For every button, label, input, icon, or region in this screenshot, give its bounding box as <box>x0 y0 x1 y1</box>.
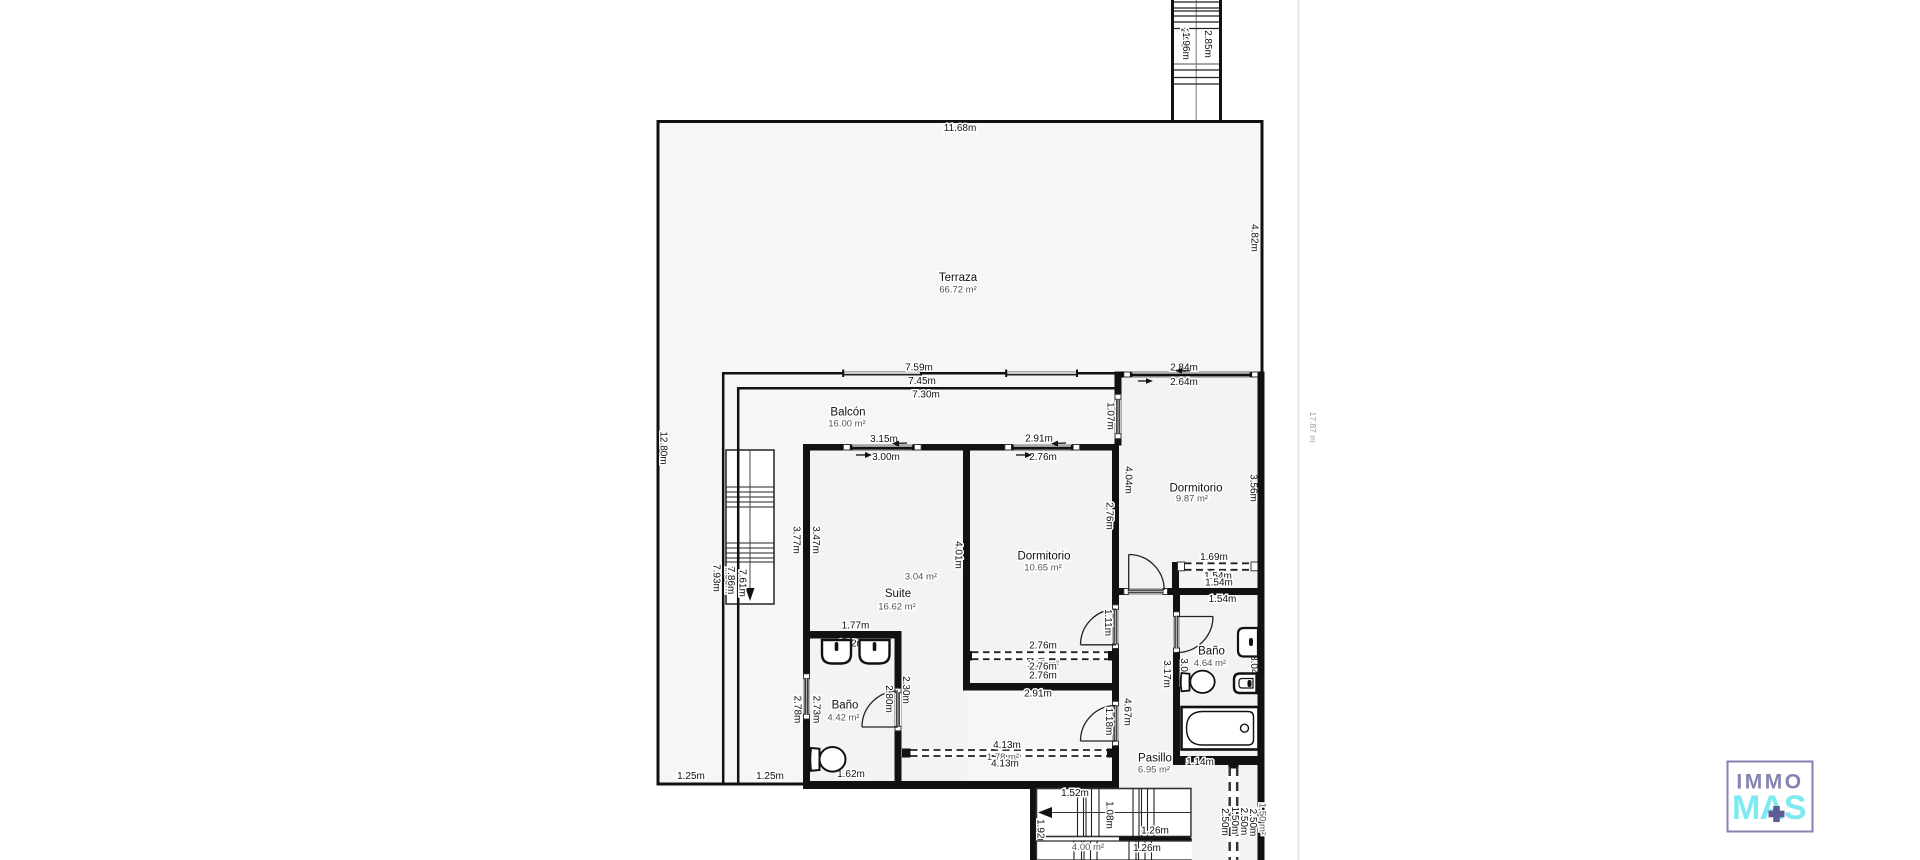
svg-text:1.96m: 1.96m <box>1180 32 1191 60</box>
svg-text:1.52m: 1.52m <box>1061 788 1089 799</box>
svg-text:2.76m: 2.76m <box>1104 502 1115 530</box>
svg-text:3.04 m²: 3.04 m² <box>905 572 937 583</box>
svg-text:10.65 m²: 10.65 m² <box>1024 563 1062 574</box>
svg-text:1,50 m²: 1,50 m² <box>1257 803 1268 835</box>
svg-text:2.91m: 2.91m <box>1025 434 1053 445</box>
svg-text:1.25m: 1.25m <box>677 771 705 782</box>
svg-text:6.95 m²: 6.95 m² <box>1138 765 1170 776</box>
svg-text:2.85m: 2.85m <box>1202 30 1213 58</box>
svg-text:12.80m: 12.80m <box>658 431 669 464</box>
svg-text:3.56m: 3.56m <box>1248 474 1259 502</box>
svg-text:7.45m: 7.45m <box>908 376 936 387</box>
svg-text:2.80m: 2.80m <box>883 685 894 713</box>
svg-text:4.67m: 4.67m <box>1122 698 1133 726</box>
svg-text:7.93m: 7.93m <box>711 564 722 592</box>
svg-text:2.30m: 2.30m <box>900 676 911 704</box>
svg-text:9.87 m²: 9.87 m² <box>1176 494 1208 505</box>
svg-text:2.91m: 2.91m <box>1024 689 1052 700</box>
svg-text:1.14m: 1.14m <box>1186 757 1214 768</box>
svg-text:3.77m: 3.77m <box>791 526 802 554</box>
svg-text:1.25m: 1.25m <box>756 771 784 782</box>
svg-text:3.00m: 3.00m <box>872 452 900 463</box>
svg-text:11.68m: 11.68m <box>944 123 977 134</box>
svg-text:1.07m: 1.07m <box>1105 402 1116 430</box>
svg-text:4.82m: 4.82m <box>1249 224 1260 252</box>
svg-text:2.76m: 2.76m <box>1029 641 1057 652</box>
svg-text:17.87 m: 17.87 m <box>1308 412 1318 443</box>
svg-text:2.73m: 2.73m <box>811 696 822 724</box>
svg-text:7.86m: 7.86m <box>725 567 736 595</box>
svg-text:1.54m: 1.54m <box>1205 578 1233 589</box>
svg-text:1.26m: 1.26m <box>1141 826 1169 837</box>
svg-text:3.17m: 3.17m <box>1161 660 1172 688</box>
svg-text:1.77m: 1.77m <box>842 621 870 632</box>
svg-text:1.18m: 1.18m <box>1103 708 1114 736</box>
svg-text:4.64 m²: 4.64 m² <box>1194 658 1226 669</box>
svg-text:Balcón: Balcón <box>830 407 865 419</box>
svg-text:1.69m: 1.69m <box>1200 552 1228 563</box>
svg-text:7.59m: 7.59m <box>905 363 933 374</box>
svg-text:Pasillo: Pasillo <box>1138 753 1172 765</box>
svg-text:Dormitorio: Dormitorio <box>1017 551 1070 563</box>
svg-text:4.00 m²: 4.00 m² <box>1072 842 1104 853</box>
svg-text:4.13m: 4.13m <box>991 759 1019 770</box>
svg-text:66.72 m²: 66.72 m² <box>939 285 977 296</box>
svg-text:MAS: MAS <box>1732 789 1806 827</box>
svg-text:2.76m: 2.76m <box>1029 452 1057 463</box>
svg-text:Suite: Suite <box>885 588 911 600</box>
svg-text:2.64m: 2.64m <box>1170 377 1198 388</box>
svg-text:2.50m: 2.50m <box>1247 809 1258 837</box>
svg-text:7.61m: 7.61m <box>737 569 748 597</box>
svg-text:Terraza: Terraza <box>939 272 978 284</box>
svg-text:1.26m: 1.26m <box>1133 843 1161 854</box>
svg-text:1.54m: 1.54m <box>1209 594 1237 605</box>
svg-text:2.50m: 2.50m <box>1219 808 1230 836</box>
svg-text:4.13m: 4.13m <box>993 740 1021 751</box>
svg-text:2.84m: 2.84m <box>1170 363 1198 374</box>
svg-text:1.08m: 1.08m <box>1104 801 1115 829</box>
svg-text:2.76m: 2.76m <box>1029 671 1057 682</box>
svg-text:7.30m: 7.30m <box>912 390 940 401</box>
svg-text:2.78m: 2.78m <box>792 696 803 724</box>
svg-text:3.47m: 3.47m <box>810 526 821 554</box>
svg-text:1.11m: 1.11m <box>1102 609 1113 636</box>
svg-text:16.00 m²: 16.00 m² <box>828 419 866 430</box>
svg-text:16.62 m²: 16.62 m² <box>878 602 916 613</box>
svg-text:4.42 m²: 4.42 m² <box>827 713 859 724</box>
svg-text:4.01m: 4.01m <box>953 541 964 569</box>
svg-text:1.62m: 1.62m <box>837 769 865 780</box>
svg-text:Baño: Baño <box>832 700 859 712</box>
svg-text:Baño: Baño <box>1198 646 1225 658</box>
svg-text:4.04m: 4.04m <box>1123 466 1134 494</box>
